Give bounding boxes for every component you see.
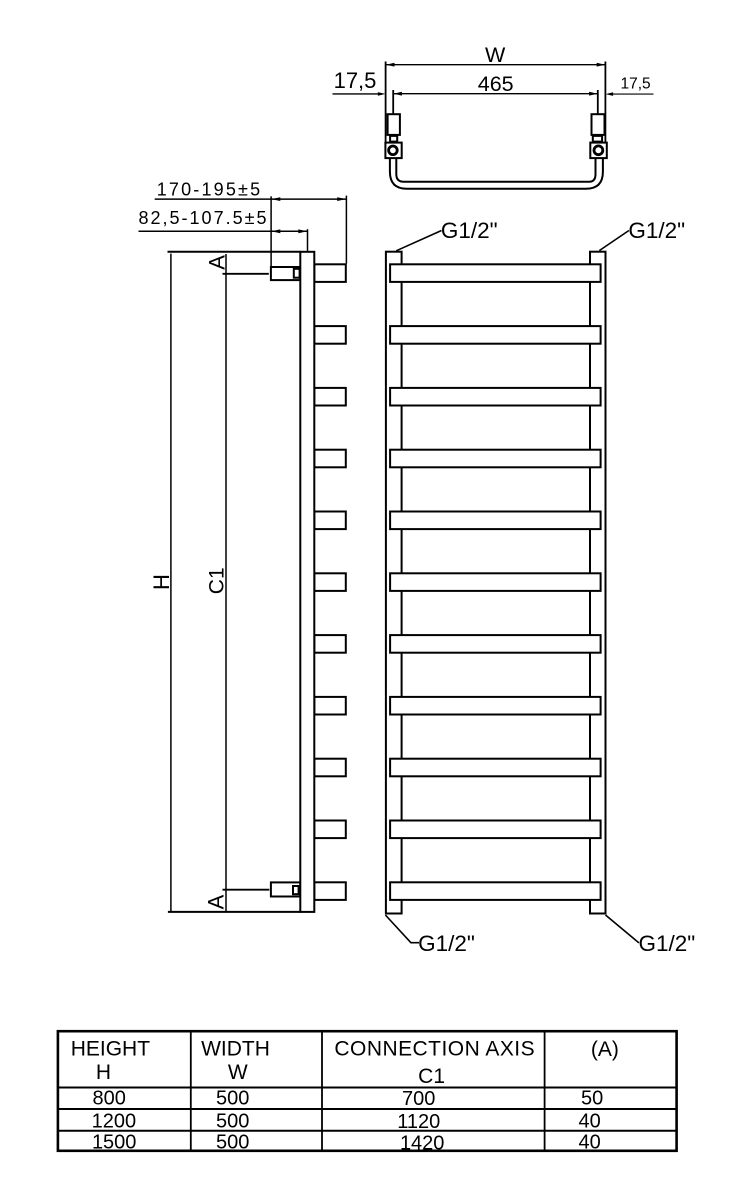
svg-text:170-195±5: 170-195±5 [157, 179, 260, 199]
svg-text:50: 50 [581, 1087, 603, 1109]
svg-text:1420: 1420 [400, 1132, 445, 1154]
svg-text:G1/2": G1/2" [441, 218, 498, 243]
svg-text:17,5: 17,5 [334, 68, 377, 93]
svg-text:G1/2": G1/2" [418, 931, 475, 956]
svg-text:C1: C1 [418, 1065, 445, 1088]
svg-text:465: 465 [478, 72, 514, 96]
svg-text:WIDTH: WIDTH [201, 1038, 270, 1061]
svg-text:1500: 1500 [92, 1132, 137, 1154]
svg-text:A: A [204, 894, 229, 909]
svg-text:1120: 1120 [397, 1111, 440, 1133]
svg-text:W: W [485, 43, 506, 67]
svg-text:500: 500 [216, 1110, 249, 1132]
svg-text:H: H [96, 1061, 111, 1084]
svg-text:CONNECTION AXIS: CONNECTION AXIS [334, 1038, 534, 1061]
svg-text:(A): (A) [591, 1038, 619, 1061]
svg-text:A: A [205, 255, 230, 270]
svg-text:82,5-107.5±5: 82,5-107.5±5 [139, 208, 267, 228]
svg-text:H: H [149, 574, 174, 590]
svg-text:C1: C1 [205, 567, 228, 594]
svg-text:HEIGHT: HEIGHT [71, 1038, 151, 1061]
svg-text:40: 40 [578, 1132, 600, 1154]
svg-text:500: 500 [216, 1132, 249, 1154]
svg-text:40: 40 [578, 1110, 600, 1132]
svg-text:G1/2": G1/2" [628, 218, 685, 243]
svg-text:17,5: 17,5 [621, 76, 651, 93]
svg-text:800: 800 [93, 1087, 126, 1109]
svg-text:700: 700 [402, 1088, 435, 1110]
svg-text:W: W [228, 1061, 248, 1084]
svg-text:500: 500 [216, 1087, 249, 1109]
svg-text:1200: 1200 [92, 1110, 137, 1132]
svg-text:G1/2": G1/2" [639, 931, 696, 956]
